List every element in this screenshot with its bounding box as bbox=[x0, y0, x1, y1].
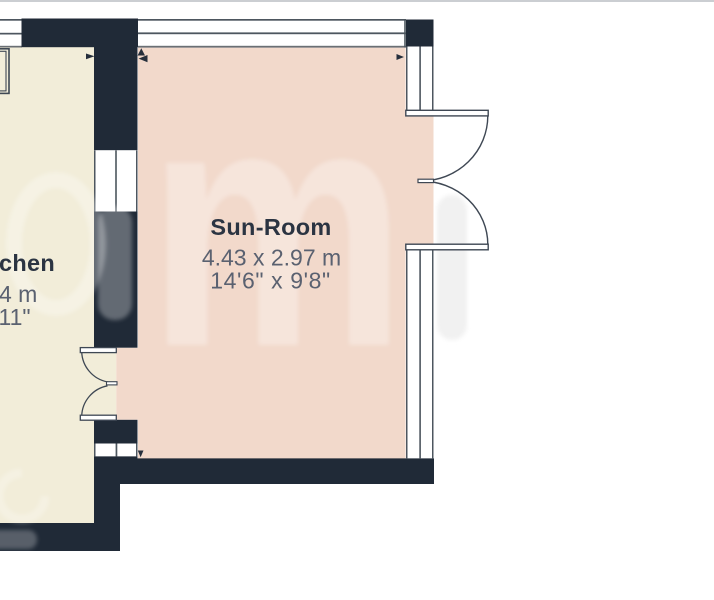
svg-text:11": 11" bbox=[0, 304, 31, 330]
svg-text:14'6" x 9'8": 14'6" x 9'8" bbox=[210, 268, 331, 294]
svg-text:Sun-Room: Sun-Room bbox=[210, 214, 331, 240]
svg-text:chen: chen bbox=[0, 250, 55, 276]
